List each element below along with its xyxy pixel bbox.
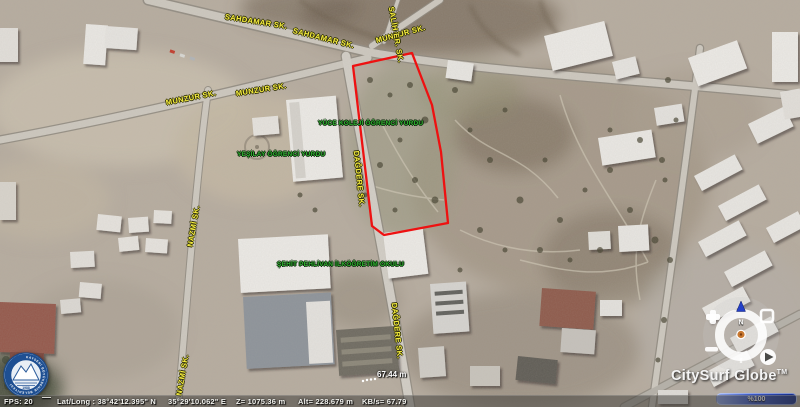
status-z-value: Z= 1075.36 m: [236, 397, 285, 406]
play-tour-button[interactable]: [760, 349, 776, 365]
south-tick: [740, 358, 742, 363]
status-longitude: 35°29'10.062" E: [168, 397, 226, 406]
app-brand: CitySurf GlobeTM: [671, 368, 787, 384]
poi-label-dorm-1: YÜCE KOLEJİ ÖĞRENCİ YURDU: [318, 121, 423, 128]
status-altitude: Alt= 228.679 m: [298, 397, 353, 406]
app-brand-name: CitySurf Globe: [671, 368, 777, 384]
status-bandwidth: KB/s= 67.79: [362, 397, 407, 406]
status-fps: FPS: 20: [4, 397, 33, 406]
poi-label-dorm-2: YEŞİLAY ÖĞRENCİ YURDU: [237, 152, 325, 159]
trademark-symbol: TM: [777, 369, 788, 376]
north-label: N: [738, 320, 743, 327]
municipality-logo: KAYSERİ BÜYÜKŞEHİR BELEDİYESİ 1988: [3, 352, 49, 398]
zoom-out-button[interactable]: [705, 347, 718, 352]
status-bar: FPS: 20 Lat/Long : 38°42'12.395" N 35°29…: [0, 395, 800, 407]
map-viewport[interactable]: SAHDAMAR SK. SAHDAMAR SK. MUNZUR SK. SAL…: [0, 0, 800, 407]
poi-label-school: ŞEHİT PEHLİVAN İLKÖĞRETİM OKULU: [277, 262, 404, 269]
navigation-compass[interactable]: N: [694, 296, 790, 374]
measurement-label: 67.44 m: [377, 371, 406, 379]
compass-center-knob[interactable]: [737, 330, 745, 338]
status-latitude: Lat/Long : 38°42'12.395" N: [57, 397, 156, 406]
emblem-year: 1988: [22, 386, 30, 390]
status-separator: [42, 397, 51, 398]
